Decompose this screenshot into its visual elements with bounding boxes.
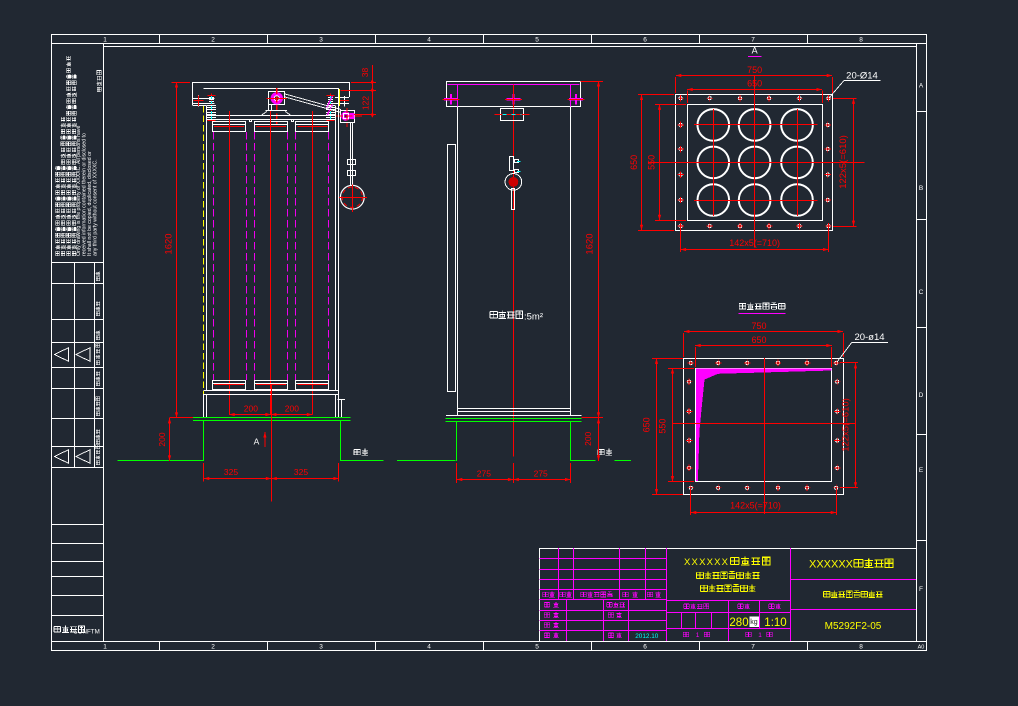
svg-text:650: 650 [751,335,766,345]
svg-text:any third party without consen: any third party without consent of XXXXC… [93,159,99,256]
svg-text:5: 5 [535,643,539,650]
svg-text:M5292F2-05: M5292F2-05 [825,621,882,632]
svg-text:XXXXXX: XXXXXX [684,557,729,568]
svg-text:3: 3 [319,37,323,44]
svg-text:650: 650 [642,417,652,432]
svg-text:550: 550 [658,419,668,434]
svg-text:D: D [919,392,924,399]
svg-text:7: 7 [751,643,755,650]
svg-text:200: 200 [157,432,167,446]
svg-text:1: 1 [696,632,700,639]
svg-text:B: B [919,185,923,192]
svg-text:6: 6 [643,643,647,650]
svg-text:325: 325 [294,467,308,477]
svg-text::5m²: :5m² [524,311,543,322]
svg-text:1: 1 [103,37,107,44]
svg-text:8: 8 [859,643,863,650]
svg-text:750: 750 [747,65,762,75]
svg-text:2: 2 [211,37,215,44]
svg-text:122x5(=610): 122x5(=610) [841,398,852,452]
svg-text:200: 200 [244,403,258,413]
svg-text:A: A [752,46,758,56]
svg-text:750: 750 [751,321,766,331]
svg-text:550: 550 [646,155,656,170]
svg-text:38: 38 [360,68,370,78]
svg-text:275: 275 [477,468,491,478]
svg-text:1620: 1620 [584,233,595,254]
svg-text:7: 7 [751,37,755,44]
svg-text:200: 200 [285,403,299,413]
svg-text:A: A [254,437,260,447]
svg-text:CONFTM: CONFTM [73,629,99,636]
svg-text:6: 6 [643,37,647,44]
svg-text:142x5(=710): 142x5(=710) [730,501,781,511]
svg-text:122: 122 [361,96,371,110]
svg-text:8: 8 [859,37,863,44]
svg-text:1:10: 1:10 [764,617,786,629]
svg-text:122x5(=610): 122x5(=610) [838,135,849,189]
svg-text:3: 3 [319,643,323,650]
svg-text:F: F [919,586,923,593]
svg-text:1620: 1620 [163,233,174,254]
svg-text:2012.10: 2012.10 [635,633,659,640]
svg-text:650: 650 [747,78,762,88]
svg-text:E: E [919,467,924,474]
svg-text:A0: A0 [918,645,925,651]
svg-text:275: 275 [534,468,548,478]
svg-text:4: 4 [427,643,431,650]
svg-text:142x5(=710): 142x5(=710) [729,238,780,248]
svg-text:200: 200 [583,431,593,445]
svg-text:20-Ø14: 20-Ø14 [846,71,878,82]
svg-text:280: 280 [729,617,748,629]
svg-text:2: 2 [211,643,215,650]
svg-text:20-ø14: 20-ø14 [854,332,884,343]
svg-text:XXXXXX: XXXXXX [809,559,854,571]
svg-text:A: A [919,83,924,90]
svg-text:5: 5 [535,37,539,44]
svg-text:kg: kg [750,619,758,626]
svg-text:1: 1 [758,632,762,639]
svg-text:650: 650 [629,155,639,170]
svg-text:4: 4 [427,37,431,44]
svg-text:C: C [919,289,924,296]
svg-text:325: 325 [224,467,238,477]
svg-text:1: 1 [103,643,107,650]
